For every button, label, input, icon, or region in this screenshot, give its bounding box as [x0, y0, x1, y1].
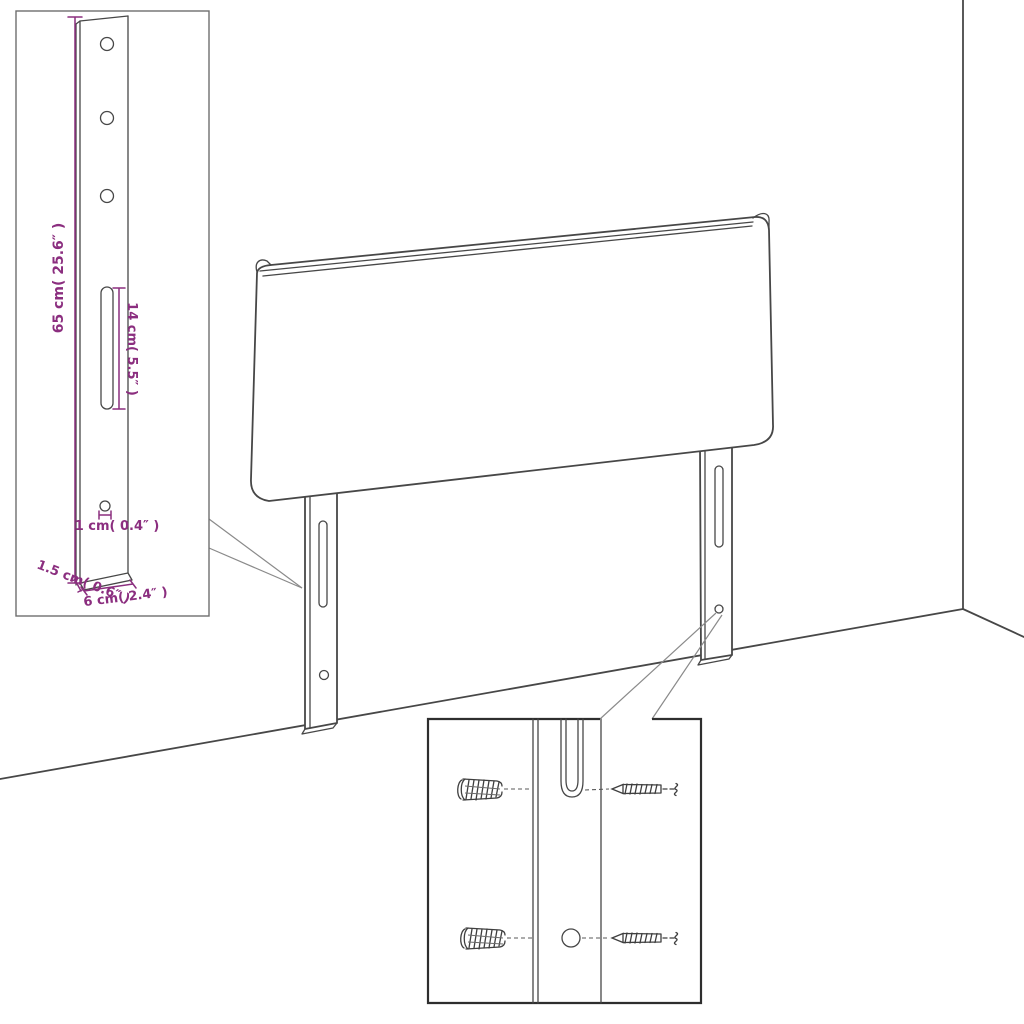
dimension-slot-line — [113, 288, 125, 409]
left-leg-slot — [319, 521, 327, 607]
bracket-hole-4 — [100, 501, 110, 511]
right-leg-slot — [715, 466, 723, 547]
bracket-hole-1 — [101, 38, 114, 51]
floor-line-right — [963, 609, 1024, 637]
dimension-height-label: 65 cm( 25.6″ ) — [51, 223, 67, 334]
bracket-hole-3 — [101, 190, 114, 203]
panel-outline — [251, 217, 773, 501]
headboard-left-leg — [302, 488, 337, 734]
dimension-height: 65 cm( 25.6″ ) — [51, 17, 82, 583]
leg-detail-drawing — [76, 16, 132, 590]
bracket-slot — [101, 287, 113, 409]
diagram-svg: 65 cm( 25.6″ ) 14 cm( 5.5″ ) 1 cm( 0.4″ … — [0, 0, 1024, 1024]
callout-inset2-right — [652, 615, 722, 719]
leg-detail-inset: 65 cm( 25.6″ ) 14 cm( 5.5″ ) 1 cm( 0.4″ … — [16, 11, 209, 616]
mounting-detail-inset — [428, 719, 701, 1003]
callout-inset2-left — [600, 613, 716, 719]
headboard-panel — [251, 213, 773, 501]
dimension-slot: 14 cm( 5.5″ ) — [113, 288, 139, 409]
dimension-hole: 1 cm( 0.4″ ) — [75, 511, 160, 534]
dimension-hole-label: 1 cm( 0.4″ ) — [75, 519, 160, 534]
diagram-canvas: 65 cm( 25.6″ ) 14 cm( 5.5″ ) 1 cm( 0.4″ … — [0, 0, 1024, 1024]
callout-lines — [209, 519, 722, 719]
headboard-right-leg — [698, 440, 732, 665]
mounting-inset-bg — [428, 719, 701, 1003]
bracket-top-edge — [76, 16, 128, 24]
dimension-hole-ticks — [99, 511, 111, 519]
bracket-hole-2 — [101, 112, 114, 125]
dimension-slot-label: 14 cm( 5.5″ ) — [124, 302, 139, 396]
